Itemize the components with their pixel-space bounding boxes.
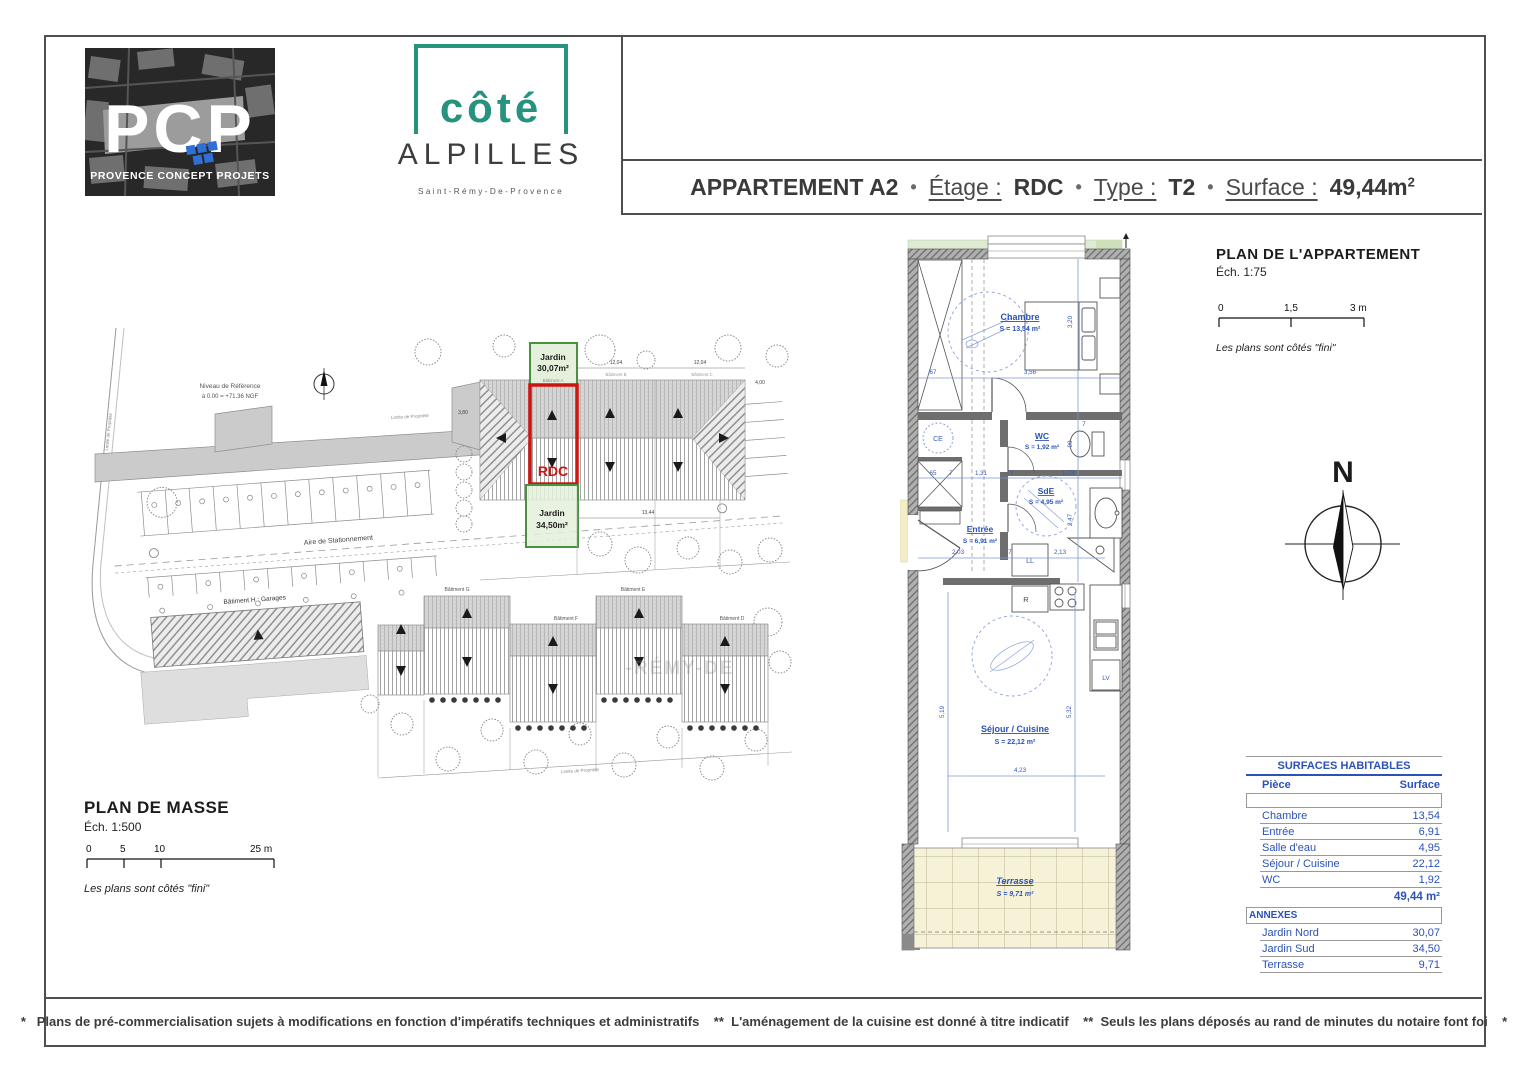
dim-3-80: 3,80 [458,410,468,416]
apartment-note: Les plans sont côtés "fini" [1216,342,1436,354]
lv-label: LV [1102,675,1110,682]
batiment-d-label: Bâtiment D [720,616,745,622]
entree-name: Entrée [967,524,994,534]
table-row: Chambre 13,54 [1260,808,1442,824]
limite-propriete-label: Limite de Propriété [104,412,113,451]
dim-7: 7 [1082,421,1086,428]
limite-propriete-label: Limite de Propriété [391,413,429,420]
property-boundary-lines [92,328,154,674]
dim-1-31: 1,31 [975,470,988,477]
scale-bar-lines [87,859,274,868]
parking-row-south [146,556,439,598]
sejour-name: Séjour / Cuisine [981,724,1049,734]
batiment-e-label: Bâtiment E [621,587,646,593]
dim-67: 67 [930,369,937,376]
type-label: Type : [1094,174,1157,201]
jardin-nord-area: 30,07m² [537,363,569,373]
apartment-name: APPARTEMENT A2 [690,174,898,201]
table-row: Entrée 6,91 [1260,824,1442,840]
dim-4-00: 4,00 [755,380,765,386]
scale-tick-3: 3 m [1350,303,1367,314]
row-surface: 6,91 [1419,826,1440,838]
cote-logo-bottom-text: ALPILLES [398,138,584,171]
dim-13-44: 13,44 [642,510,655,516]
footer-disclaimer: * Plans de pré-commercialisation sujets … [46,997,1482,1043]
row-piece: Chambre [1262,810,1307,822]
sejour-area: S = 22,12 m² [995,739,1036,746]
scale-tick-25: 25 m [250,844,272,855]
table-row: Jardin Nord 30,07 [1260,925,1442,941]
dim-90: 90 [1067,440,1074,447]
row-surface: 13,54 [1412,810,1440,822]
masse-scale: Éch. 1:500 [84,820,324,834]
lot-marker-icon [717,504,727,514]
dim-7: 7 [1010,470,1014,477]
batiment-b-label: Bâtiment B [605,372,626,377]
column-surface: Surface [1400,779,1440,791]
table-row: Terrasse 9,71 [1260,957,1442,973]
dim-12-04: 12,04 [694,360,707,366]
bullet-separator: • [1207,177,1213,198]
pcp-logo-letters: PCP [104,91,256,167]
sheet-title: APPARTEMENT A2 • Étage : RDC • Type : T2… [623,159,1482,213]
surface-exponent: 2 [1408,174,1415,189]
row-piece: Séjour / Cuisine [1262,858,1340,870]
table-row: Salle d'eau 4,95 [1260,840,1442,856]
road-markings [115,516,784,573]
apartment-plan-drawing: CE [900,232,1132,954]
masse-scale-bar: 0 5 10 25 m [84,842,284,876]
etage-label: Étage : [929,174,1002,201]
jardin-sud-area: 34,50m² [536,520,568,530]
sde-name: SdE [1038,486,1055,496]
rdc-label: RDC [538,463,568,479]
apartment-scale: Éch. 1:75 [1216,265,1436,279]
apartment-title: PLAN DE L'APPARTEMENT [1216,246,1436,263]
jardin-nord-highlight: Jardin 30,07m² Bâtiment A [530,343,577,385]
row-surface: 34,50 [1412,943,1440,955]
surface-label: Surface : [1226,174,1318,201]
batiment-g-label: Bâtiment G [444,587,469,593]
row-piece: Jardin Nord [1262,927,1319,939]
chambre-area: S = 13,54 m² [1000,326,1041,333]
batiment-f-label: Bâtiment F [554,616,578,622]
surface-value: 49,44m2 [1330,174,1415,201]
bullet-separator: • [1075,177,1081,198]
scale-bar-lines [1219,318,1364,327]
dim-3-20: 3,20 [1067,315,1074,328]
table-row: Séjour / Cuisine 22,12 [1260,856,1442,872]
dim-3-56: 3,56 [1024,369,1037,376]
building-row-north: Bâtiment B Bâtiment C [480,372,745,500]
site-north-compass-icon [314,368,334,400]
jardin-sud-highlight: Jardin 34,50m² [526,485,578,547]
row-piece: Jardin Sud [1262,943,1315,955]
surfaces-table: SURFACES HABITABLES Pièce Surface Chambr… [1246,756,1442,973]
terrasse-name: Terrasse [996,876,1033,886]
surfaces-table-title: SURFACES HABITABLES [1246,757,1442,776]
table-row: Jardin Sud 34,50 [1260,941,1442,957]
dim-2-03: 2,03 [952,549,965,556]
site-plan-drawing: Limite de Propriété Limite de Propriété … [80,322,795,797]
dim-1-73: 1,73 [1062,470,1075,477]
row-surface: 9,71 [1419,959,1440,971]
wc-area: S = 1,92 m² [1025,444,1060,451]
row-surface: 22,12 [1412,858,1440,870]
parking-row-south-markers [158,566,404,613]
masse-caption: PLAN DE MASSE Éch. 1:500 0 5 10 25 m Les… [84,798,324,895]
sde-door-swing [1008,504,1036,532]
north-compass-icon: N [1285,452,1400,602]
scale-tick-5: 5 [120,844,126,855]
dim-12-04: 12,04 [610,360,623,366]
dim-65: 65 [930,470,937,477]
row-piece: WC [1262,874,1280,886]
surfaces-table-spacer [1246,793,1442,808]
plan-sheet: PCP PROVENCE CONCEPT PROJETS côté ALPILL… [0,0,1528,1080]
dim-4-23: 4,23 [1014,767,1027,774]
pcp-logo: PCP PROVENCE CONCEPT PROJETS [85,48,275,196]
toilet-icon [1070,431,1104,457]
niveau-reference-line2: à 0.00 = +71.36 NGF [202,394,259,400]
apartment-scale-bar: 0 1,5 3 m [1216,301,1376,335]
chambre-closet [918,260,962,524]
pcp-logo-subtitle: PROVENCE CONCEPT PROJETS [90,170,270,182]
bed [1025,278,1120,394]
dim-2-13: 2,13 [1054,549,1067,556]
dim-5-32: 5,32 [1066,705,1073,718]
parking-row-north [137,470,433,536]
batiment-h-label: Bâtiment H : Garages [223,594,287,606]
annexes-header: ANNEXES [1246,907,1442,924]
bullet-separator: • [910,177,916,198]
cote-alpilles-logo: côté ALPILLES Saint-Rémy-De-Provence [388,42,588,204]
type-value: T2 [1168,174,1195,201]
limite-propriete-label: Limite de Propriété [561,767,600,774]
sde-fixtures [1068,488,1122,572]
garden-edge-strip-dark [1096,240,1122,249]
dim-7: 7 [1008,549,1012,556]
cote-logo-subtitle: Saint-Rémy-De-Provence [418,187,564,196]
ce-label: CE [933,436,943,443]
ll-label: LL [1026,558,1034,565]
dim-5-19: 5,19 [939,705,946,718]
column-piece: Pièce [1262,779,1291,791]
sde-area: S = 4,95 m² [1029,499,1064,506]
dim-7: 7 [949,470,953,477]
jardin-nord-label: Jardin [540,352,566,362]
terrasse-floor [914,848,1116,948]
batiment-c-label: Bâtiment C [691,372,712,377]
dim-2-47: 2,47 [1067,513,1074,526]
scale-tick-0: 0 [86,844,92,855]
sejour-table-circle [972,616,1052,696]
terrasse-area: S = 9,71 m² [997,891,1034,898]
compass-n-label: N [1332,456,1354,489]
masse-note: Les plans sont côtés "fini" [84,883,324,895]
row-piece: Salle d'eau [1262,842,1316,854]
etage-value: RDC [1014,174,1064,201]
row-surface: 30,07 [1412,927,1440,939]
table-row: WC 1,92 [1260,872,1442,888]
row-piece: Terrasse [1262,959,1304,971]
scale-tick-10: 10 [154,844,166,855]
lot-marker-icon [149,548,159,558]
apartment-caption: PLAN DE L'APPARTEMENT Éch. 1:75 0 1,5 3 … [1216,246,1436,354]
r-label: R [1023,595,1029,604]
jardin-sud-label: Jardin [539,508,565,518]
row-piece: Entrée [1262,826,1294,838]
row-surface: 4,95 [1419,842,1440,854]
entree-area: S = 6,91 m² [963,538,998,545]
chambre-door-swing [992,378,1026,412]
masse-title: PLAN DE MASSE [84,798,324,818]
watermark-text: -RÉMY-DE [626,657,735,679]
surfaces-total: 49,44 m² [1246,888,1442,906]
north-tick-icon [1123,233,1129,248]
batiment-a-label: Bâtiment A [543,378,564,383]
cote-logo-top-text: côté [440,84,542,131]
wc-name: WC [1035,431,1049,441]
row-surface: 1,92 [1419,874,1440,886]
scale-tick-1-5: 1,5 [1284,303,1298,314]
entry-path-strip [900,500,908,562]
chambre-name: Chambre [1000,312,1039,322]
niveau-reference-line1: Niveau de Référence [199,383,260,390]
title-block: APPARTEMENT A2 • Étage : RDC • Type : T2… [621,37,1482,215]
aire-stationnement-label: Aire de Stationnement [304,535,374,547]
scale-tick-0: 0 [1218,303,1224,314]
surfaces-table-header: Pièce Surface [1246,776,1442,793]
